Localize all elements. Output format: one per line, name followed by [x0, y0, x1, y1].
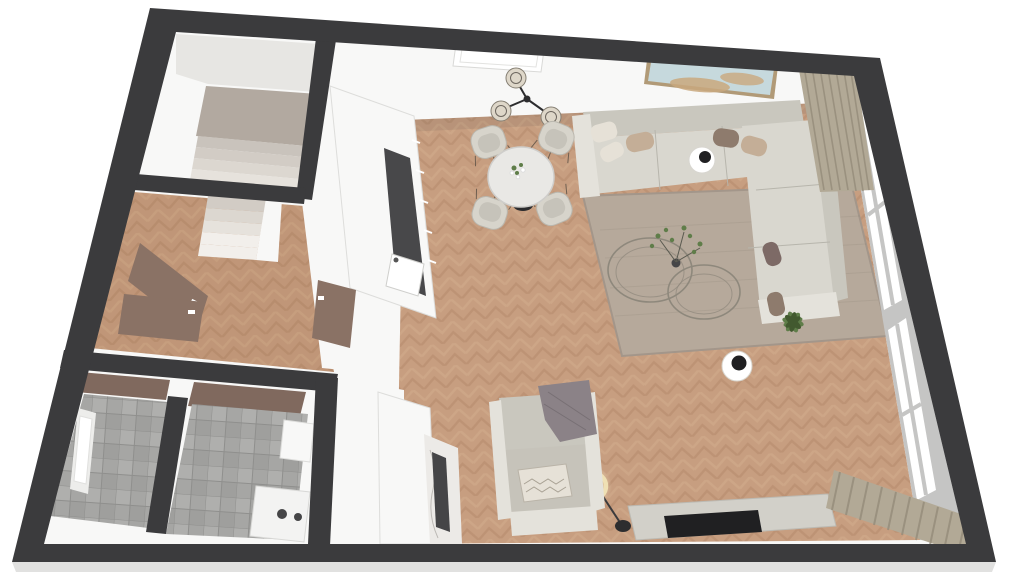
floor-plan-canvas — [0, 0, 1024, 576]
washing-machine — [250, 486, 310, 542]
side-table-tray — [699, 151, 711, 163]
door-leaf — [118, 294, 204, 342]
stool-tray — [732, 356, 747, 371]
stair-landing — [196, 86, 318, 146]
door-hall-kitchen — [312, 280, 356, 348]
ground-shadow — [12, 562, 996, 572]
round-side-table — [689, 147, 715, 173]
globe — [491, 101, 511, 121]
washer-knob — [294, 513, 302, 521]
washer-knob — [277, 509, 287, 519]
door-leaf — [312, 280, 356, 348]
dining-table — [488, 147, 554, 207]
utility-cabinet — [280, 420, 314, 462]
floor-plan-render — [0, 0, 1024, 576]
door-handle — [188, 310, 195, 314]
armchair — [489, 380, 605, 536]
lamp-base — [615, 520, 631, 532]
chandelier-hub — [524, 96, 531, 103]
staircase-lower — [198, 196, 282, 262]
sink-faucet — [394, 258, 399, 263]
hallway — [90, 192, 356, 372]
round-stool-table — [722, 351, 752, 381]
globe — [506, 68, 526, 88]
door-handle — [318, 296, 324, 300]
utility-room — [166, 382, 314, 542]
door-hall-lower — [118, 294, 204, 342]
